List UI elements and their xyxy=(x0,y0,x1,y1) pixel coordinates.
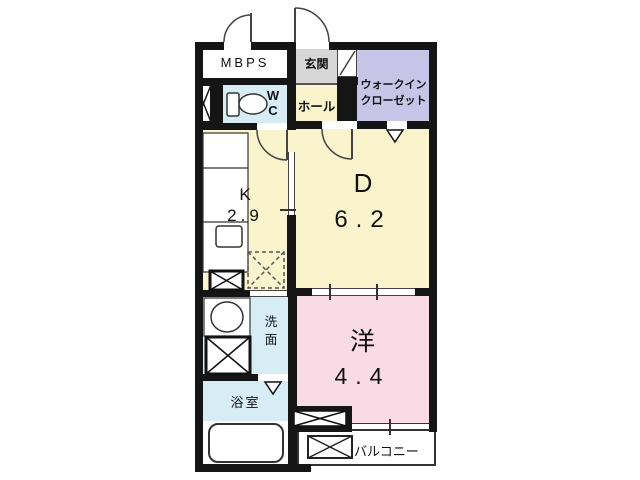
western-room-label: 洋 xyxy=(296,322,429,358)
wall xyxy=(329,42,437,50)
wc-label-line1: W xyxy=(264,88,282,103)
wall xyxy=(195,290,250,297)
wall xyxy=(287,42,296,130)
wall xyxy=(195,464,311,472)
hall-label: ホール xyxy=(296,96,337,115)
door-swing-meter-box xyxy=(224,13,251,42)
bathroom-label: 浴室 xyxy=(203,392,288,411)
wall xyxy=(287,215,296,297)
shoe-cabinet xyxy=(337,49,357,77)
entrance-step-line xyxy=(296,83,337,85)
kitchen-size: 2.9 xyxy=(203,206,287,226)
wall xyxy=(195,42,203,472)
walk-in-closet-label-line1: ウォークイン xyxy=(355,77,432,93)
kitchen-label: K xyxy=(203,185,287,205)
wall xyxy=(357,121,387,129)
washroom-label-line1: 洗 xyxy=(260,313,282,331)
wall xyxy=(296,121,322,129)
washroom-label: 洗 面 xyxy=(260,313,282,349)
wc-label-line2: C xyxy=(264,103,282,118)
walk-in-closet-label: ウォークイン クローゼット xyxy=(355,77,432,109)
bathtub-area xyxy=(203,421,288,464)
wall xyxy=(195,78,296,85)
western-room-size: 4.4 xyxy=(296,363,429,390)
floorplan-canvas: MBPS 玄関 ウォークイン クローゼット ホール W C K 2.9 D 6.… xyxy=(0,0,640,480)
dining-label: D xyxy=(296,168,430,199)
balcony-label: バルコニー xyxy=(354,441,436,460)
dining-western-sliding-door xyxy=(312,288,415,296)
dining-size: 6.2 xyxy=(296,206,430,234)
wall xyxy=(195,123,257,130)
wall xyxy=(288,288,312,296)
wall xyxy=(415,288,437,296)
kitchen-dining-sliding-door xyxy=(288,152,295,215)
entrance-label: 玄関 xyxy=(296,55,337,72)
walk-in-closet-label-line2: クローゼット xyxy=(355,93,432,109)
wall xyxy=(407,121,430,129)
washroom-label-line2: 面 xyxy=(260,331,282,349)
door-swing-entrance xyxy=(295,8,329,42)
washroom-sliding-door xyxy=(250,290,287,297)
mbps-label: MBPS xyxy=(203,55,287,70)
wall xyxy=(195,374,258,381)
wall xyxy=(212,84,223,123)
wc-label: W C xyxy=(264,88,282,118)
room-western xyxy=(296,296,429,424)
western-closet-block xyxy=(288,406,352,432)
wall xyxy=(337,85,357,121)
